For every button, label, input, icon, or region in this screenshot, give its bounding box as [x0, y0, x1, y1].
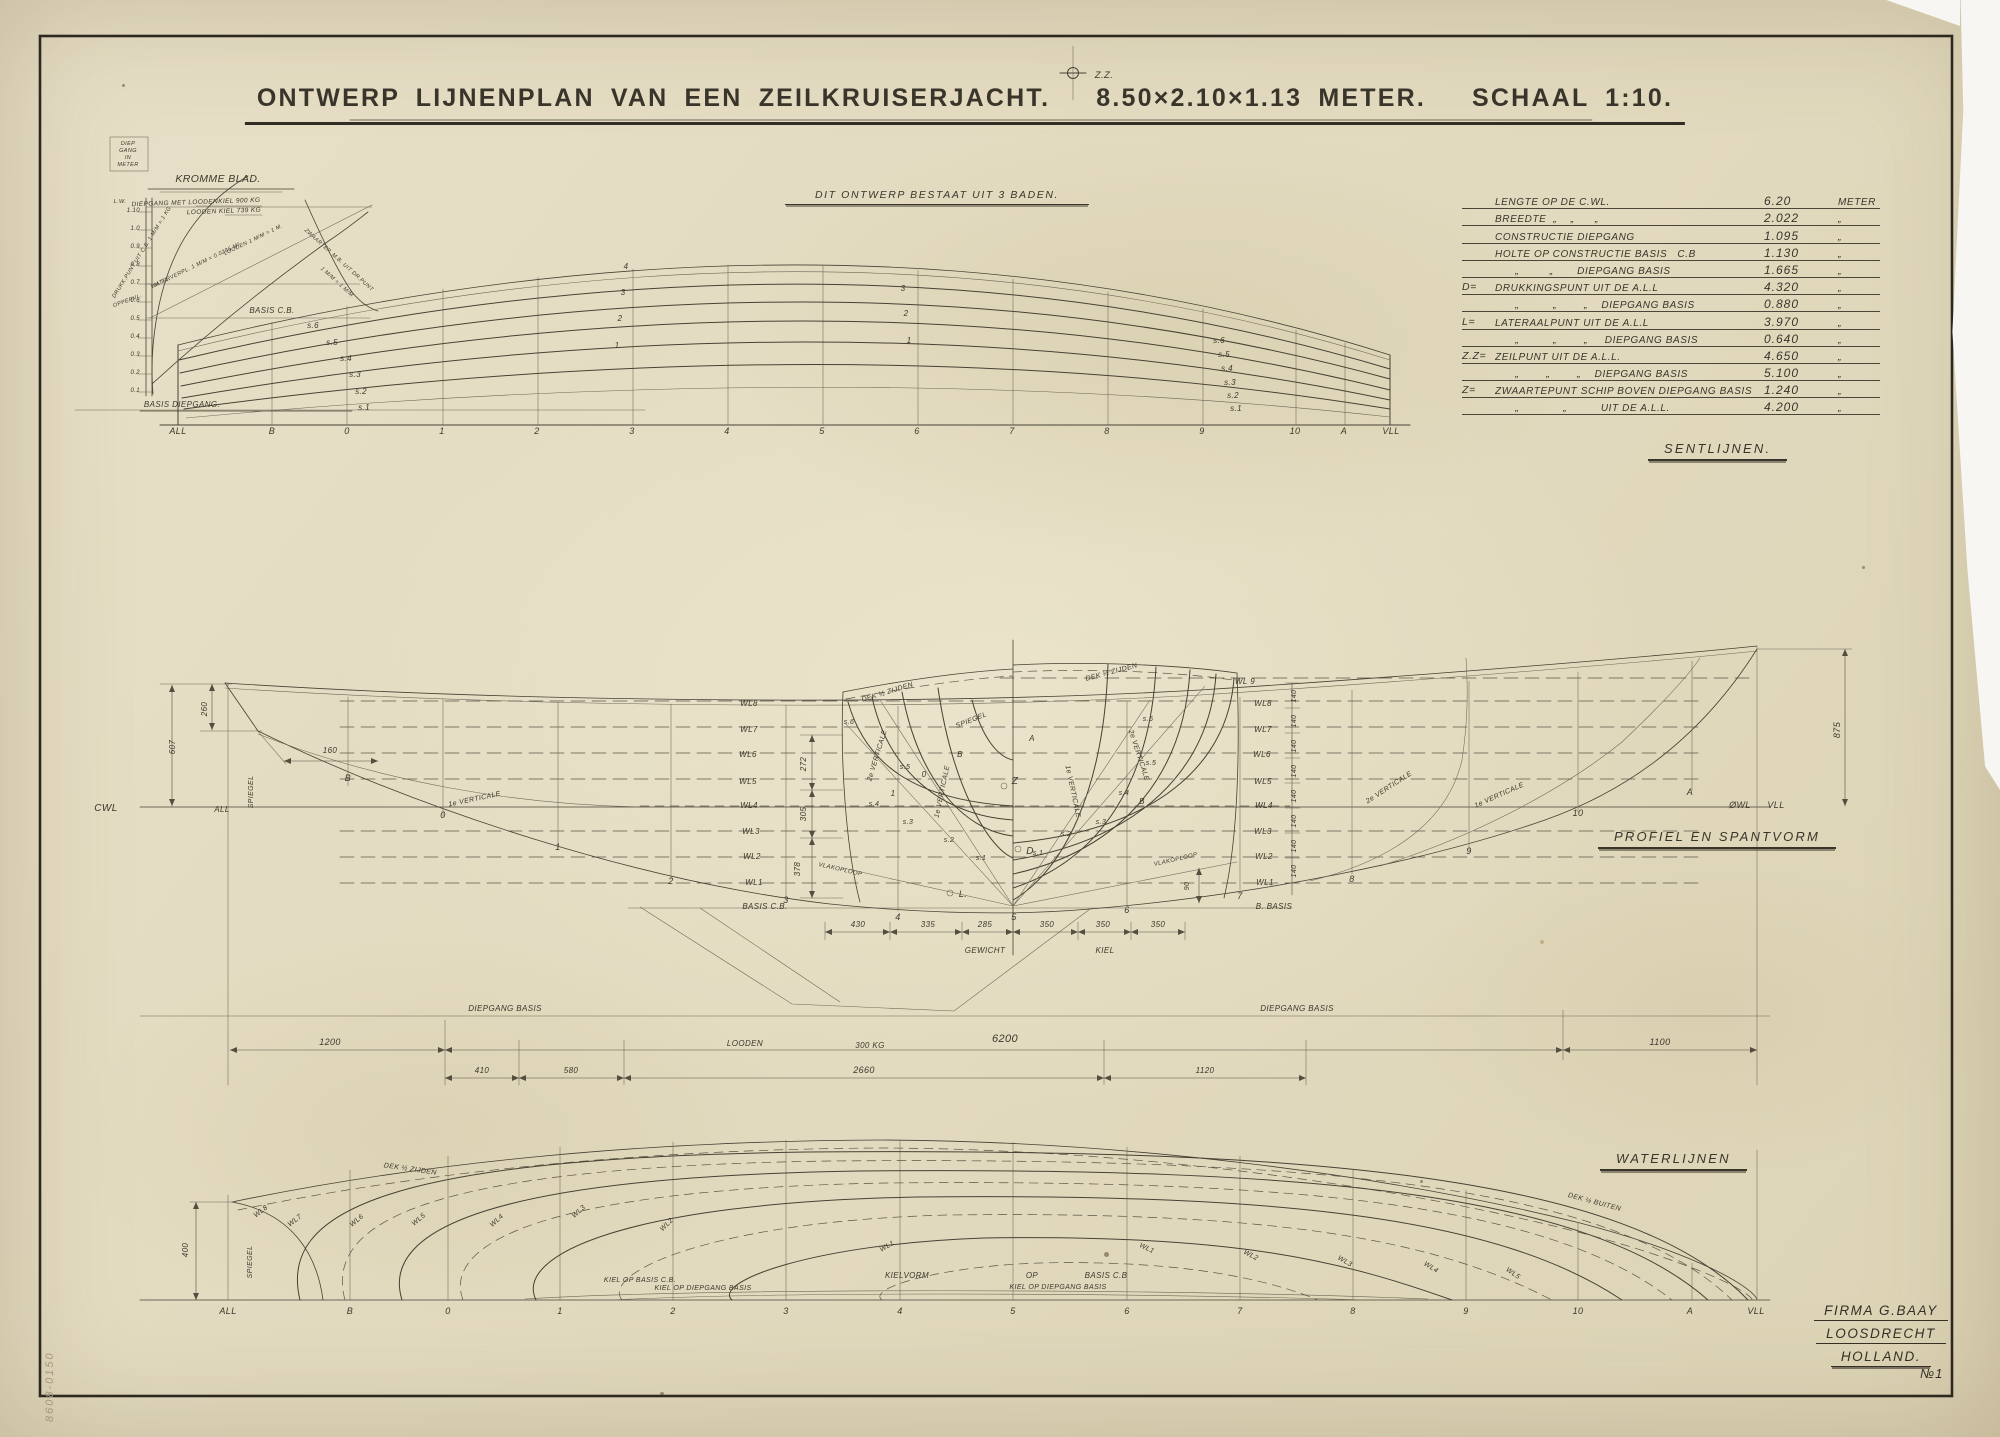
drawing-label: 4	[724, 426, 729, 436]
drawing-label: 1	[555, 842, 560, 852]
drawing-label: 350	[1040, 920, 1055, 929]
drawing-label: 0.1	[130, 388, 140, 394]
spec-label: ZEILPUNT UIT DE A.L.L.	[1495, 352, 1764, 363]
drawing-label: KIEL OP DIEPGANG BASIS	[1009, 1284, 1106, 1291]
spec-value: 0.640	[1764, 332, 1838, 346]
drawing-label: 1	[891, 789, 896, 798]
drawing-label: 335	[921, 920, 936, 929]
drawing-label: KIEL	[1096, 946, 1115, 955]
drawing-label: s.5	[1218, 350, 1230, 359]
spec-label: CONSTRUCTIE DIEPGANG	[1495, 232, 1764, 243]
drawing-label: 6200	[992, 1033, 1019, 1045]
profiel-view: CWLALLØWLVLLB012345678910AWL8WL7WL6WL5WL…	[94, 640, 1852, 1085]
drawing-label: s.1	[976, 855, 987, 862]
drawing-label: 2	[667, 876, 673, 886]
spec-row: „ „ „ DIEPGANG BASIS0.880„	[1462, 295, 1880, 312]
spec-label: DRUKKINGSPUNT UIT DE A.L.L	[1495, 283, 1764, 294]
spec-label: LATERAALPUNT UIT DE A.L.L	[1495, 318, 1764, 329]
firm-city: LOOSDRECHT	[1816, 1326, 1946, 1344]
drawing-label: 0.7	[130, 280, 140, 286]
drawing-label: ALL	[168, 426, 186, 436]
spec-unit: „	[1838, 266, 1880, 277]
drawing-label: 8	[1349, 874, 1354, 884]
drawing-label: 6	[1124, 905, 1129, 915]
drawing-label: A	[1686, 1306, 1693, 1316]
spec-table-rows: LENGTE OP DE C.WL.6.20METERBREEDTE „ „ „…	[1462, 192, 1880, 415]
drawing-label: VLL	[1382, 426, 1399, 436]
drawing-label: WL5	[1254, 777, 1272, 786]
drawing-label: 7	[1237, 1306, 1243, 1316]
drawing-label: 6	[914, 426, 919, 436]
drawing-label: 2	[533, 426, 539, 436]
hull-sheer-line	[225, 646, 1757, 700]
drawing-label: B	[957, 750, 963, 759]
drawing-label: WL7	[287, 1213, 304, 1229]
drawing-label: B. BASIS	[1256, 902, 1293, 911]
drawing-label: WL5	[411, 1212, 427, 1227]
drawing-label: 160	[323, 746, 338, 755]
drawing-label: s.6	[307, 321, 319, 330]
drawing-label: s.2	[355, 387, 367, 396]
drawing-label: DEK ½ ZIJDEN	[1085, 661, 1139, 683]
profiel-heading: PROFIEL EN SPANTVORM	[1598, 829, 1836, 849]
spec-label: „ „ „ DIEPGANG BASIS	[1495, 300, 1764, 311]
drawing-label: 7	[1237, 891, 1243, 901]
drawing-label: 5	[819, 426, 825, 436]
spec-unit: „	[1838, 214, 1880, 225]
drawing-label: 1.10	[127, 208, 141, 214]
sentlijnen-heading: SENTLIJNEN.	[1648, 441, 1787, 461]
drawing-label: 1200	[319, 1037, 341, 1047]
drawing-label: 305	[799, 807, 808, 822]
drawing-label: DIEPGANG BASIS	[1260, 1004, 1334, 1013]
drawing-label: WL3	[571, 1204, 587, 1220]
drawing-label: 3	[621, 288, 626, 297]
waterlijnen-heading: WATERLIJNEN	[1600, 1151, 1747, 1171]
spec-row: „ „ UIT DE A.L.L.4.200„	[1462, 398, 1880, 415]
drawing-label: IN	[125, 155, 131, 161]
drawing-label: WL1	[745, 878, 763, 887]
drawing-label: 0	[445, 1306, 450, 1316]
drawing-label: GEWICHT	[965, 946, 1006, 955]
spec-value: 1.665	[1764, 263, 1838, 277]
drawing-label: SPIEGEL	[247, 1246, 254, 1279]
spec-row: L=LATERAALPUNT UIT DE A.L.L3.970„	[1462, 312, 1880, 329]
drawing-label: ØWL	[1728, 800, 1751, 810]
spec-unit: „	[1838, 300, 1880, 311]
drawing-label: 140	[1291, 790, 1298, 803]
drawing-label: 0.3	[130, 352, 140, 358]
title-dimensions: 8.50×2.10×1.13 METER.	[1096, 84, 1426, 112]
drawing-label: 875	[1832, 721, 1842, 738]
drawing-label: Z	[1011, 776, 1019, 787]
spec-unit: „	[1838, 249, 1880, 260]
drawing-label: KIEL OP BASIS C.B.	[604, 1277, 676, 1284]
drawing-label: VLL	[1767, 800, 1784, 810]
paper-speck	[122, 84, 125, 87]
drawing-label: 1.0	[130, 226, 140, 232]
spec-label: BREEDTE „ „ „	[1495, 214, 1764, 225]
drawing-label: 3	[901, 284, 906, 293]
drawing-label: s.5	[326, 338, 338, 347]
spec-label: LENGTE OP DE C.WL.	[1495, 197, 1764, 208]
drawing-label: s.4	[1221, 364, 1233, 373]
spec-label: „ „ „ DIEPGANG BASIS	[1495, 369, 1764, 380]
drawing-label: B	[345, 773, 351, 783]
drawing-label: 272	[799, 757, 808, 773]
drawing-label: 5	[1010, 1306, 1016, 1316]
drawing-label: 607	[168, 740, 177, 755]
drawing-label: WL4	[740, 801, 758, 810]
drawing-title: ONTWERP LIJNENPLAN VAN EEN ZEILKRUISERJA…	[245, 84, 1685, 125]
drawing-label: WL1	[1256, 878, 1274, 887]
drawing-label: s.1	[1230, 404, 1242, 413]
drawing-label: 140	[1291, 865, 1298, 878]
spec-unit: METER	[1838, 197, 1880, 208]
spec-label: ZWAARTEPUNT SCHIP BOVEN DIEPGANG BASIS	[1495, 386, 1764, 397]
spec-value: 2.022	[1764, 211, 1838, 225]
drawing-label: 0.5	[130, 316, 140, 322]
spec-value: 6.20	[1764, 194, 1838, 208]
drawing-label: METER	[117, 162, 138, 168]
drawing-label: 350	[1151, 920, 1166, 929]
drawing-label: WL4	[1422, 1261, 1439, 1275]
drawing-label: s.2	[1227, 391, 1239, 400]
paper-speck	[1862, 566, 1865, 569]
drawing-label: BASIS C.B.	[249, 306, 294, 315]
drawing-label: 140	[1291, 715, 1298, 728]
drawing-label: KIEL OP DIEPGANG BASIS	[654, 1285, 751, 1292]
drawing-label: 9	[1466, 846, 1471, 856]
drawing-label: B	[347, 1306, 353, 1316]
drawing-label: 0.4	[130, 334, 140, 340]
drawing-label: KROMME BLAD.	[175, 173, 260, 185]
drawing-label: B	[269, 426, 275, 436]
drawing-label: ALL	[218, 1306, 236, 1316]
spec-unit: „	[1838, 318, 1880, 329]
spec-label: HOLTE OP CONSTRUCTIE BASIS C.B	[1495, 249, 1764, 260]
spec-row: „ „ „ DIEPGANG BASIS5.100„	[1462, 364, 1880, 381]
water-view: ALLB012345678910AVLL400SPIEGELWL8WL7WL6W…	[140, 1140, 1770, 1316]
drawing-label: D	[1026, 846, 1034, 857]
drawing-label: s.4	[869, 801, 880, 808]
drawing-label: 3	[629, 426, 634, 436]
drawing-label: WL2	[1255, 852, 1273, 861]
drawing-label: 1e VERTICALE	[448, 791, 502, 809]
drawing-label: 1	[907, 336, 912, 345]
spec-value: 1.095	[1764, 229, 1838, 243]
drawing-label: 4	[897, 1306, 902, 1316]
drawing-label: 2660	[852, 1065, 875, 1075]
drawing-label: 430	[851, 920, 866, 929]
spec-unit: „	[1838, 232, 1880, 243]
spec-prefix: Z.Z=	[1462, 350, 1493, 362]
inventory-stamp: 8608-0150	[44, 1351, 56, 1422]
drawing-label: 3	[783, 1306, 788, 1316]
drawing-label: 7	[1009, 426, 1015, 436]
drawing-label: s.3	[349, 370, 361, 379]
transom-plan-curve	[232, 1202, 323, 1300]
drawing-label: DEK ½ BUITEN	[1567, 1191, 1622, 1213]
drawing-label: DIEPGANG BASIS	[468, 1004, 542, 1013]
drawing-label: GANG	[119, 148, 137, 154]
spec-row: BREEDTE „ „ „2.022„	[1462, 209, 1880, 226]
spec-value: 4.650	[1764, 349, 1838, 363]
drawing-label: A	[1686, 787, 1693, 797]
drawing-label: WL7	[740, 725, 758, 734]
drawing-label: 0	[922, 770, 927, 779]
spec-label: „ „ „ DIEPGANG BASIS	[1495, 335, 1764, 346]
drawing-label: 0.9	[130, 244, 140, 250]
drawing-label: BASIS DIEPGANG.	[144, 400, 220, 409]
drawing-label: 8	[1104, 426, 1109, 436]
drawing-label: 10	[1573, 1306, 1584, 1316]
drawing-label: 90	[1184, 882, 1191, 891]
drawing-label: LOODEN	[727, 1039, 763, 1048]
hull-keel-profile	[258, 649, 1757, 913]
drawing-label: 10	[1290, 426, 1301, 436]
drawing-label: VLL	[1747, 1306, 1764, 1316]
drawing-label: ALL	[213, 805, 229, 814]
drawing-label: WL3	[742, 827, 760, 836]
spec-unit: „	[1838, 369, 1880, 380]
spec-value: 0.880	[1764, 297, 1838, 311]
spec-unit: „	[1838, 335, 1880, 346]
spec-row: Z=ZWAARTEPUNT SCHIP BOVEN DIEPGANG BASIS…	[1462, 381, 1880, 398]
drawing-label: 6	[1124, 1306, 1129, 1316]
drawing-label: s.6	[1213, 336, 1225, 345]
drawing-label: WL1	[879, 1240, 896, 1254]
drawing-label: LOODEN 1 M/M = 1 M.	[223, 223, 284, 257]
drawing-label: 1	[557, 1306, 562, 1316]
spec-value: 1.240	[1764, 383, 1838, 397]
drawing-label: 1	[615, 341, 620, 350]
spec-prefix: L=	[1462, 316, 1493, 328]
paper-speck	[1420, 1180, 1423, 1183]
drawing-label: A	[1340, 426, 1347, 436]
drawing-label: WL3	[1254, 827, 1272, 836]
drawing-label: 410	[475, 1066, 490, 1075]
drawing-label: 0.2	[130, 370, 140, 376]
drawing-label: 10	[1573, 808, 1584, 818]
drawing-label: s.6	[844, 719, 855, 726]
drawing-label: s.1	[1033, 850, 1044, 857]
spec-value: 1.130	[1764, 246, 1838, 260]
spec-row: „ „ „ DIEPGANG BASIS0.640„	[1462, 330, 1880, 347]
drawing-label: 2	[617, 314, 623, 323]
drawing-label: B	[1139, 797, 1145, 806]
spec-label: „ „ DIEPGANG BASIS	[1495, 266, 1764, 277]
drawing-label: WL1	[1138, 1242, 1155, 1255]
drawing-label: 140	[1291, 690, 1298, 703]
spec-row: Z.Z=ZEILPUNT UIT DE A.L.L.4.650„	[1462, 347, 1880, 364]
drawing-sheet: Z.Z. KROMME BLAD.DIEPGANG MET LOODENKIEL…	[0, 0, 2000, 1437]
drawing-label: WL6	[739, 750, 757, 759]
spec-value: 3.970	[1764, 315, 1838, 329]
drawing-label: KIELVORM	[885, 1271, 929, 1280]
drawing-label: 400	[181, 1243, 190, 1258]
drawing-label: 4	[624, 262, 629, 271]
design-note: DIT ONTWERP BESTAAT UIT 3 BADEN.	[785, 189, 1089, 205]
drawing-label: 140	[1291, 815, 1298, 828]
drawing-label: 4	[895, 912, 900, 922]
drawing-label: s.4	[340, 354, 352, 363]
drawing-label: BASIS C.B	[1085, 1271, 1128, 1280]
spec-value: 4.320	[1764, 280, 1838, 294]
drawing-label: WL2	[659, 1217, 675, 1233]
paper-speck	[1104, 1252, 1109, 1257]
drawing-label: WL3	[1336, 1255, 1353, 1269]
drawing-label: SPIEGEL	[248, 776, 255, 809]
drawing-label: 378	[793, 862, 802, 877]
drawing-label: 1e VERTICALE	[1474, 782, 1526, 810]
firm-name: FIRMA G.BAAY	[1814, 1303, 1948, 1321]
drawing-label: WL 9	[1235, 677, 1255, 686]
drawing-label: 9	[1199, 426, 1204, 436]
drawing-label: s.4	[1119, 790, 1130, 797]
drawing-label: s.2	[944, 837, 955, 844]
paper-speck	[660, 1392, 664, 1395]
title-scale: SCHAAL 1:10.	[1472, 84, 1673, 112]
spec-unit: „	[1838, 386, 1880, 397]
drawing-label: 300 KG	[855, 1041, 885, 1050]
drawing-label: 5	[1011, 912, 1017, 922]
drawing-label: 1100	[1650, 1037, 1671, 1047]
drawing-label: 2	[669, 1306, 675, 1316]
drawing-label: WL8	[1254, 699, 1272, 708]
drawing-label: s.6	[1143, 716, 1154, 723]
drawing-label: DEK ½ ZIJDEN	[383, 1161, 438, 1176]
drawing-label: s.3	[903, 819, 914, 826]
spec-unit: „	[1838, 352, 1880, 363]
drawing-label: VLAKOPLOOP	[1153, 852, 1198, 868]
drawing-label: 140	[1291, 840, 1298, 853]
spec-label: „ „ UIT DE A.L.L.	[1495, 403, 1764, 414]
drawing-label: Z.Z.	[1094, 70, 1114, 81]
spec-row: LENGTE OP DE C.WL.6.20METER	[1462, 192, 1880, 209]
spec-value: 4.200	[1764, 400, 1838, 414]
drawing-label: 2	[903, 309, 909, 318]
spec-row: D=DRUKKINGSPUNT UIT DE A.L.L4.320„	[1462, 278, 1880, 295]
drawing-label: DIEP	[121, 141, 135, 147]
drawing-label: WL6	[1253, 750, 1271, 759]
drawing-label: VLAKOPLOOP	[818, 862, 863, 878]
drawing-label: WL6	[349, 1213, 365, 1228]
drawing-label: 285	[977, 920, 993, 929]
spec-row: „ „ DIEPGANG BASIS1.665„	[1462, 261, 1880, 278]
specification-table: LENGTE OP DE C.WL.6.20METERBREEDTE „ „ „…	[1462, 192, 1880, 415]
drawing-label: 0	[344, 426, 349, 436]
drawing-label: WL4	[1255, 801, 1273, 810]
drawing-label: 350	[1096, 920, 1111, 929]
spec-row: CONSTRUCTIE DIEPGANG1.095„	[1462, 226, 1880, 243]
drawing-label: WL8	[740, 699, 758, 708]
spec-unit: „	[1838, 403, 1880, 414]
paper-speck	[1540, 940, 1544, 944]
drawing-label: 1e VERTICALE	[934, 765, 952, 819]
drawing-label: L.	[959, 889, 967, 899]
drawing-label: 140	[1291, 765, 1298, 778]
drawing-label: 2e VERTICALE	[866, 729, 889, 783]
drawing-label: 9	[1463, 1306, 1468, 1316]
drawing-label: 1120	[1196, 1066, 1215, 1075]
drawing-label: 260	[200, 702, 209, 718]
drawing-label: 140	[1291, 740, 1298, 753]
drawing-label: s.5	[1146, 760, 1157, 767]
spec-value: 5.100	[1764, 366, 1838, 380]
drawing-label: s.3	[1096, 819, 1107, 826]
drawing-label: s.5	[900, 764, 911, 771]
drawing-label: s.1	[358, 403, 370, 412]
drawing-label: A	[1028, 734, 1035, 743]
drawing-label: WL2	[743, 852, 761, 861]
drawing-label: L.W.	[114, 199, 127, 205]
drawing-label: 2e VERTICALE	[1364, 770, 1413, 805]
firm-block: FIRMA G.BAAY LOOSDRECHT HOLLAND.	[1808, 1303, 1954, 1372]
drawing-label: BASIS C.B.	[742, 902, 787, 911]
spec-row: HOLTE OP CONSTRUCTIE BASIS C.B1.130„	[1462, 244, 1880, 261]
drawing-label: WL5	[1504, 1266, 1521, 1281]
drawing-label: WL5	[739, 777, 757, 786]
spec-prefix: D=	[1462, 281, 1493, 293]
drawing-label: 8	[1350, 1306, 1355, 1316]
drawing-label: OP	[1026, 1271, 1039, 1280]
drawing-label: WL7	[1254, 725, 1272, 734]
drawing-label: 1	[439, 426, 444, 436]
spec-unit: „	[1838, 283, 1880, 294]
drawing-label: 1e VERTICALE	[1064, 765, 1082, 819]
drawing-label: CWL	[94, 803, 117, 814]
drawing-label: 580	[564, 1066, 579, 1075]
drawing-label: s.2	[1061, 831, 1072, 838]
spec-prefix: Z=	[1462, 384, 1493, 396]
firm-country: HOLLAND.	[1831, 1349, 1931, 1367]
title-text: ONTWERP LIJNENPLAN VAN EEN ZEILKRUISERJA…	[257, 84, 1050, 112]
drawing-label: M.T.L.	[153, 276, 171, 289]
sheet-number: №1	[1920, 1366, 1943, 1381]
drawing-label: WL4	[489, 1213, 505, 1229]
drawing-label: 0	[440, 810, 445, 820]
drawing-label: s.3	[1224, 378, 1236, 387]
